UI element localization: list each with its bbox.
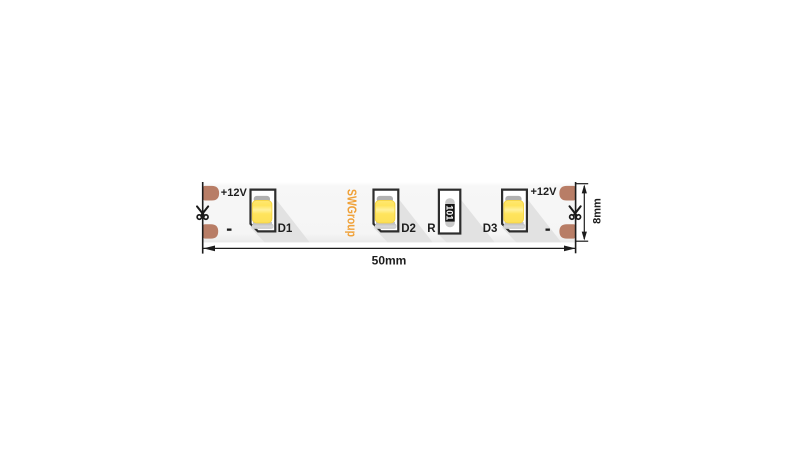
svg-text:+12V: +12V (531, 186, 558, 198)
svg-text:SWGroup: SWGroup (345, 189, 360, 237)
svg-text:D3: D3 (483, 223, 498, 235)
svg-text:8mm: 8mm (591, 198, 603, 224)
svg-text:50mm: 50mm (372, 253, 407, 267)
svg-text:R: R (427, 223, 436, 235)
svg-text:101: 101 (445, 205, 455, 220)
svg-text:D2: D2 (401, 223, 416, 235)
svg-text:D1: D1 (278, 223, 293, 235)
svg-text:+12V: +12V (221, 187, 248, 199)
